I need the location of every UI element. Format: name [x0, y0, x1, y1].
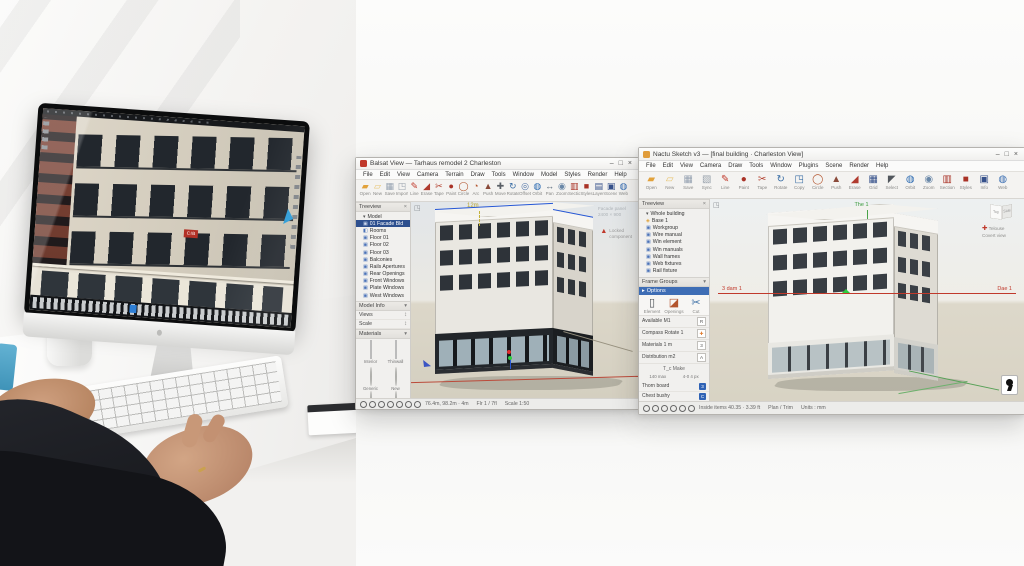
toolbar-button[interactable]: ▣ Info — [975, 174, 994, 190]
toolbar-button[interactable]: ✂ Tape — [753, 174, 772, 190]
toolbar-button[interactable]: ▦ Save — [384, 181, 396, 196]
tool-icon: ▣ — [605, 181, 617, 191]
tree-item[interactable]: ◈ Base 1 — [639, 217, 709, 224]
toolbar-button[interactable]: ◯ Circle — [457, 181, 469, 196]
status-icon[interactable] — [643, 405, 650, 412]
tree-item[interactable]: ▣ Wire manual — [639, 232, 709, 239]
component-tool-button[interactable]: ▯ Element — [642, 297, 662, 314]
status-icon[interactable] — [670, 405, 677, 412]
make-label: T_c Make — [639, 364, 709, 373]
status-icons — [643, 405, 695, 412]
tool-icon: ▱ — [371, 181, 383, 191]
menu-item[interactable]: Scene — [822, 163, 845, 169]
tree-item-icon: ▣ — [363, 264, 368, 270]
status-icon[interactable] — [396, 401, 403, 408]
tree-item-icon: ▣ — [363, 257, 368, 263]
notebook — [307, 403, 356, 436]
tree-item[interactable]: ▣ Rear Openings — [356, 271, 410, 278]
building-model[interactable] — [754, 199, 954, 395]
tool-icon: ◯ — [457, 181, 469, 191]
property-value[interactable]: 3 — [697, 341, 706, 350]
status-bar: Inside items 40.35 · 3.39 ftPlan / TrimU… — [639, 401, 1024, 414]
tree-item[interactable]: ▣ Balconies — [356, 256, 410, 263]
property-label: Distribution m2 — [642, 354, 675, 360]
menu-bar: FileEditViewCameraTerrainDrawToolsWindow… — [356, 170, 638, 180]
status-icon[interactable] — [661, 405, 668, 412]
toolbar-button[interactable]: ◍ Web — [994, 174, 1013, 190]
tree-item-label: Floor 02 — [370, 242, 389, 248]
window-control-button[interactable]: – — [996, 151, 1000, 158]
toolbar-button[interactable]: ▥ Section — [568, 181, 580, 196]
status-icon[interactable] — [360, 401, 367, 408]
tool-icon: ◢ — [846, 174, 865, 185]
toolbar: ▰ Open ▱ New ▦ Save ▧ Sync ✎ Line ● Pain… — [639, 172, 1024, 199]
toolbar-button[interactable]: ◢ Erase — [846, 174, 865, 190]
toolbar-button[interactable]: ▣ Scenes — [605, 181, 617, 196]
swatch-thumbnail — [395, 391, 397, 398]
tool-icon: ✎ — [716, 174, 735, 185]
tree-item[interactable]: ▣ Win element — [639, 239, 709, 246]
stepper-icon[interactable]: ↕ — [404, 312, 407, 318]
screen-reflection — [29, 108, 304, 328]
titlebar[interactable]: Nactu Sketch v3 — [final building · Char… — [639, 148, 1024, 161]
tool-label: Save — [384, 191, 396, 196]
tree-item-icon: ▣ — [363, 293, 368, 299]
info-row[interactable]: Scale ↕ — [356, 320, 410, 329]
property-value[interactable]: R — [697, 317, 706, 326]
tool-icon: ◳ — [790, 174, 809, 185]
toolbar-button[interactable]: ▦ Grid — [864, 174, 883, 190]
window-controls: –□× — [610, 160, 634, 167]
status-bar: 76.4m, 98.2m · 4mFlr 1 / 7flScale 1:50 — [356, 398, 638, 409]
tree-item-icon: ▾ — [363, 214, 366, 220]
menu-item[interactable]: Edit — [660, 163, 676, 169]
status-icon[interactable] — [369, 401, 376, 408]
toolbar-button[interactable]: ◯ Circle — [809, 174, 828, 190]
toolbar-button[interactable]: ▦ Save — [679, 174, 698, 190]
tool-icon: ◉ — [556, 181, 568, 191]
tree-item-label: Balconies — [370, 257, 393, 263]
toolbar-button[interactable]: ↻ Rotate — [772, 174, 791, 190]
tree-item-icon: ▣ — [363, 250, 368, 256]
tool-icon: ◍ — [531, 181, 543, 191]
toolbar-button[interactable]: ↔ Pan — [543, 181, 555, 196]
dimension-label-right: Dae 1 — [997, 286, 1012, 292]
orbit-button[interactable] — [1001, 375, 1018, 395]
material-spheres: Generic New Floor Glass — [356, 366, 410, 398]
toolbar: ▰ Open ▱ New ▦ Save ◳ Import ✎ Line ◢ Er… — [356, 180, 638, 202]
menu-item[interactable]: View — [394, 172, 413, 178]
tool-label: Zoom — [920, 185, 939, 190]
toggle-row[interactable]: Chest bushy C — [639, 392, 709, 401]
property-label: Materials 1 m — [642, 342, 672, 348]
tool-label: Zoom — [556, 191, 568, 196]
toolbar-button[interactable]: ◉ Zoom — [556, 181, 568, 196]
menu-item[interactable]: Render — [846, 163, 872, 169]
tool-label: Cut — [686, 309, 706, 314]
toolbar-button[interactable]: ▱ New — [661, 174, 680, 190]
dimension-dashed-line — [479, 211, 480, 226]
viewport-axes-icon[interactable]: ◳ — [713, 201, 720, 209]
view-cube-face[interactable]: Top — [990, 204, 1002, 220]
toolbar-button[interactable]: ■ Styles — [957, 174, 976, 190]
groups-header[interactable]: Frame Groups▾ — [639, 277, 709, 287]
view-cube[interactable]: Top Side — [988, 201, 1014, 221]
toggle-label: Chest bushy — [642, 393, 670, 399]
window-controls: –□× — [996, 151, 1020, 158]
status-text: Scale 1:50 — [505, 401, 530, 407]
tree-item-icon: ▣ — [646, 225, 651, 231]
tool-icon: ▦ — [384, 181, 396, 191]
info-row[interactable]: Views ↕ — [356, 311, 410, 320]
property-value[interactable]: A — [697, 353, 706, 362]
viewport-axes-icon[interactable]: ◳ — [414, 204, 421, 212]
tree-item-icon: ▣ — [646, 261, 651, 267]
status-icon[interactable] — [414, 401, 421, 408]
expand-icon: ▸ — [642, 288, 645, 294]
status-text: Inside items 40.35 · 3.39 ft — [699, 405, 760, 411]
tool-icon: ● — [735, 174, 754, 185]
tree-item-icon: ▣ — [363, 242, 368, 248]
status-icon[interactable] — [405, 401, 412, 408]
tree-item-label: Plate Windows — [370, 285, 404, 291]
menu-item[interactable]: Window — [767, 163, 794, 169]
toolbar-button[interactable]: ↻ Rotate — [507, 181, 519, 196]
tool-icon: ◯ — [809, 174, 828, 185]
tree-item-icon: ▾ — [646, 211, 649, 217]
app-icon — [360, 160, 367, 167]
tool-icon: ↔ — [543, 181, 555, 191]
tool-icon: ✚ — [494, 181, 506, 191]
tool-label: Orbit — [531, 191, 543, 196]
material-swatch[interactable]: Interior — [359, 341, 382, 364]
window-control-button[interactable]: × — [1014, 151, 1018, 158]
tool-label: Info — [975, 185, 994, 190]
gizmo-blue-axis — [510, 360, 511, 369]
tool-label: Tape — [433, 191, 445, 196]
menu-item[interactable]: Draw — [468, 172, 488, 178]
tool-label: Sync — [698, 185, 717, 190]
swatch-thumbnail — [395, 340, 397, 359]
toolbar-button[interactable]: ◳ Copy — [790, 174, 809, 190]
status-icon[interactable] — [679, 405, 686, 412]
menu-item[interactable]: Help — [611, 172, 629, 178]
menu-item[interactable]: Model — [538, 172, 560, 178]
tool-label: Arc — [470, 191, 482, 196]
titlebar[interactable]: Balsat View — Tarhaus remodel 2 Charlest… — [356, 158, 638, 170]
imac-screen-bezel: CIB — [24, 103, 310, 333]
tree-item-label: Wire manual — [653, 232, 682, 238]
tree-item[interactable]: ▣ Rails Apertures — [356, 263, 410, 270]
window-title: Balsat View — Tarhaus remodel 2 Charlest… — [370, 160, 607, 167]
options-bar[interactable]: ▸Options — [639, 287, 709, 295]
tool-label: Circle — [457, 191, 469, 196]
swatch-thumbnail — [370, 340, 372, 359]
tree-panel-header[interactable]: Treeview× — [356, 202, 410, 212]
toolbar-button[interactable]: ◍ Orbit — [531, 181, 543, 196]
toolbar-button[interactable]: ✎ Line — [408, 181, 420, 196]
tool-icon: ◍ — [994, 174, 1013, 185]
tool-label: Section — [938, 185, 957, 190]
tool-label: Section — [568, 191, 580, 196]
tree-item-label: Floor 03 — [370, 250, 389, 256]
viewport-3d[interactable]: ◳ — [710, 199, 1024, 401]
tree-item-label: Win manuals — [653, 247, 683, 253]
tree-item[interactable]: ▣ Rail fixture — [639, 268, 709, 275]
tool-icon: ■ — [580, 181, 592, 191]
menu-item[interactable]: Help — [873, 163, 891, 169]
sidebar: Treeview× ▾ Whole building ◈ Base 1 ▣ Wo… — [639, 199, 710, 401]
tree-item[interactable]: ▣ Win manuals — [639, 246, 709, 253]
tool-label: Paint — [735, 185, 754, 190]
toolbar-button[interactable]: ◔ Arc — [470, 181, 482, 196]
menu-item[interactable]: Window — [510, 172, 537, 178]
tree-panel-header[interactable]: Treeview× — [639, 199, 709, 209]
tool-icon: ▦ — [864, 174, 883, 185]
toolbar-button[interactable]: ▲ Push — [827, 174, 846, 190]
tool-icon: ▥ — [938, 174, 957, 185]
component-tool-button[interactable]: ◪ Openings — [664, 297, 684, 314]
info-panel-header[interactable]: Model Info▾ — [356, 301, 410, 311]
toolbar-button[interactable]: ◍ Web — [617, 181, 629, 196]
tool-label: Push — [827, 185, 846, 190]
component-thumbnails: 140 max 4-0 4 px — [639, 373, 709, 382]
imac-display: CIB — [22, 103, 310, 359]
warning-icon: ▲ — [600, 228, 607, 239]
toolbar-button[interactable]: ◍ Orbit — [901, 174, 920, 190]
tree-item-icon: ▣ — [363, 235, 368, 241]
viewport-3d[interactable]: ◳ — [411, 202, 638, 398]
window-control-button[interactable]: □ — [619, 160, 623, 167]
toggle-checkbox[interactable]: C — [699, 393, 706, 400]
tree-item-label: West Windows — [370, 293, 404, 299]
tool-icon: ▰ — [359, 181, 371, 191]
toolbar-button[interactable]: ◤ Select — [883, 174, 902, 190]
tree-item[interactable]: ▾ Model — [356, 213, 410, 220]
tool-icon: ◳ — [396, 181, 408, 191]
component-tool-button[interactable]: ✂ Cut — [686, 297, 706, 314]
tool-label: Web — [617, 191, 629, 196]
property-label: Compass Rotate 1 — [642, 330, 683, 336]
tree-item[interactable]: ▣ Floor 03 — [356, 249, 410, 256]
property-row[interactable]: Available M1 R — [639, 316, 709, 328]
collapse-icon[interactable]: ▾ — [404, 331, 407, 337]
tool-icon: ↻ — [507, 181, 519, 191]
collapse-icon[interactable]: ▾ — [404, 303, 407, 309]
material-squares: Interior Thinwall — [356, 339, 410, 366]
toolbar-button[interactable]: ▱ New — [371, 181, 383, 196]
menu-item[interactable]: Render — [585, 172, 611, 178]
tool-label: Open — [642, 185, 661, 190]
tree-item[interactable]: ◧ Rooms — [356, 227, 410, 234]
property-row[interactable]: Distribution m2 A — [639, 352, 709, 364]
component-thumbnail[interactable]: 4-0 4 px — [683, 374, 699, 380]
material-swatch[interactable]: New — [384, 368, 407, 391]
status-text: Flr 1 / 7fl — [477, 401, 497, 407]
toolbar-button[interactable]: ✎ Line — [716, 174, 735, 190]
component-label: 4-0 4 px — [683, 374, 699, 380]
tool-label: Web — [994, 185, 1013, 190]
menu-bar: FileEditViewCameraDrawToolsWindowPlugins… — [639, 161, 1024, 172]
tree-item-icon: ◧ — [363, 228, 368, 234]
tool-icon: ▤ — [593, 181, 605, 191]
material-swatch[interactable]: Generic — [359, 368, 382, 391]
status-icon[interactable] — [387, 401, 394, 408]
toolbar-button[interactable]: ✚ Move — [494, 181, 506, 196]
menu-item[interactable]: File — [360, 172, 376, 178]
tree-item[interactable]: ▣ Web fixtures — [639, 260, 709, 267]
tree-item-label: Base 1 — [652, 218, 668, 224]
toolbar-button[interactable]: ▰ Open — [642, 174, 661, 190]
menu-item[interactable]: View — [677, 163, 696, 169]
tool-label: Styles — [957, 185, 976, 190]
tool-icon: ■ — [957, 174, 976, 185]
app-icon — [643, 151, 650, 158]
tree-item-icon: ▣ — [646, 268, 651, 274]
home-view-widget[interactable]: ✚ TelouseCovert view — [982, 225, 1016, 239]
menu-item[interactable]: File — [643, 163, 659, 169]
building-model[interactable] — [423, 204, 601, 388]
tool-icon: ◢ — [420, 181, 432, 191]
status-text: Plan / Trim — [768, 405, 793, 411]
tree-item[interactable]: ▣ West Windows — [356, 292, 410, 299]
tool-icon: ▯ — [642, 297, 662, 309]
tree-item[interactable]: ▣ Floor 02 — [356, 242, 410, 249]
toolbar-button[interactable]: ◎ Offset — [519, 181, 531, 196]
toggle-checkbox[interactable]: 3 — [699, 383, 706, 390]
green-snap-marker — [842, 285, 850, 293]
tree-item-icon: ▣ — [363, 271, 368, 277]
green-top-label: The 1 — [854, 202, 868, 208]
toolbar-button[interactable]: ● Paint — [445, 181, 457, 196]
tool-label: Grid — [864, 185, 883, 190]
tool-label: Layers — [593, 191, 605, 196]
toolbar-button[interactable]: ▥ Section — [938, 174, 957, 190]
green-guide-line — [867, 210, 868, 219]
tool-label: Circle — [809, 185, 828, 190]
toolbar-button[interactable]: ▲ Push — [482, 181, 494, 196]
window-control-button[interactable]: × — [628, 160, 632, 167]
materials-header[interactable]: Materials▾ — [356, 329, 410, 339]
viewport-tooltip: Facade panel2400 × 900 — [598, 206, 632, 217]
property-value[interactable]: ✚ — [697, 329, 706, 338]
tool-label: Openings — [664, 309, 684, 314]
tree-item-icon: ▣ — [646, 247, 651, 253]
cad-window-left: Balsat View — Tarhaus remodel 2 Charlest… — [355, 157, 639, 410]
material-swatch[interactable]: Thinwall — [384, 341, 407, 364]
tool-icon: ✂ — [686, 297, 706, 309]
status-icon[interactable] — [688, 405, 695, 412]
tree-item-icon: ▣ — [363, 285, 368, 291]
menu-item[interactable]: Plugins — [796, 163, 822, 169]
tool-label: Copy — [790, 185, 809, 190]
toggle-row[interactable]: Thorn board 3 — [639, 382, 709, 392]
tool-label: Orbit — [901, 185, 920, 190]
view-cube-face[interactable]: Side — [1002, 204, 1012, 219]
tool-icon: ▲ — [827, 174, 846, 185]
status-icon[interactable] — [378, 401, 385, 408]
menu-item[interactable]: Terrain — [442, 172, 466, 178]
storefront — [435, 328, 553, 370]
toolbar-button[interactable]: ◉ Zoom — [920, 174, 939, 190]
tree-item-label: Rooms — [370, 228, 386, 234]
tree-item-label: Rail fixture — [653, 268, 678, 274]
tree-item-icon: ▣ — [363, 221, 368, 227]
window-control-button[interactable]: □ — [1005, 151, 1009, 158]
window-title: Nactu Sketch v3 — [final building · Char… — [653, 151, 993, 158]
swatch-thumbnail — [370, 391, 372, 398]
tool-label: Erase — [420, 191, 432, 196]
status-icon[interactable] — [652, 405, 659, 412]
menu-item[interactable]: Edit — [377, 172, 393, 178]
photo-app-screen: CIB — [29, 108, 304, 328]
property-row[interactable]: Compass Rotate 1 ✚ — [639, 328, 709, 340]
menu-item[interactable]: Tools — [489, 172, 509, 178]
tool-label: Erase — [846, 185, 865, 190]
building-front-face — [768, 204, 894, 379]
tree-item-label: Workgroup — [653, 225, 678, 231]
tree-item[interactable]: ▣ Workgroup — [639, 224, 709, 231]
tool-label: Move — [494, 191, 506, 196]
outliner-tree: ▾ Whole building ◈ Base 1 ▣ Workgroup ▣ … — [639, 209, 709, 277]
toolbar-button[interactable]: ✂ Tape — [433, 181, 445, 196]
collapse-icon[interactable]: × — [703, 201, 706, 207]
tree-item[interactable]: ▣ 01 Facade Bld — [356, 220, 410, 227]
tree-item[interactable]: ▣ Floor 01 — [356, 235, 410, 242]
tree-item[interactable]: ▣ Plate Windows — [356, 285, 410, 292]
toolbar-button[interactable]: ▧ Sync — [698, 174, 717, 190]
toolbar-button[interactable]: ◳ Import — [396, 181, 408, 196]
toolbar-button[interactable]: ● Paint — [735, 174, 754, 190]
tree-item-label: Floor 01 — [370, 235, 389, 241]
tool-label: Select — [883, 185, 902, 190]
window-control-button[interactable]: – — [610, 160, 614, 167]
tree-item[interactable]: ▣ Wall frames — [639, 253, 709, 260]
tool-label: Paint — [445, 191, 457, 196]
menu-item[interactable]: Tools — [746, 163, 766, 169]
tool-icon: ✂ — [753, 174, 772, 185]
menu-item[interactable]: Styles — [561, 172, 583, 178]
tree-item-icon: ▣ — [646, 254, 651, 260]
tool-icon: ▥ — [568, 181, 580, 191]
tool-icon: ▣ — [975, 174, 994, 185]
tree-item-icon: ◈ — [646, 218, 650, 224]
menu-item[interactable]: Camera — [414, 172, 441, 178]
toolbar-button[interactable]: ◢ Erase — [420, 181, 432, 196]
collapse-icon[interactable]: × — [404, 204, 407, 210]
tree-item[interactable]: ▣ Front Windows — [356, 278, 410, 285]
toolbar-button[interactable]: ▰ Open — [359, 181, 371, 196]
toolbar-button[interactable]: ■ Styles — [580, 181, 592, 196]
stepper-icon[interactable]: ↕ — [404, 321, 407, 327]
toolbar-button[interactable]: ▤ Layers — [593, 181, 605, 196]
tree-item-label: Whole building — [651, 211, 685, 217]
tool-icon: ● — [445, 181, 457, 191]
menu-item[interactable]: Camera — [697, 163, 724, 169]
tool-icon: ◉ — [920, 174, 939, 185]
component-label: 140 max — [649, 374, 666, 380]
tool-icon: ◔ — [470, 181, 482, 191]
tool-label: Styles — [580, 191, 592, 196]
menu-item[interactable]: Draw — [725, 163, 745, 169]
building-front-face — [435, 204, 553, 374]
component-thumbnail[interactable]: 140 max — [649, 374, 666, 380]
collapse-icon[interactable]: ▾ — [703, 279, 706, 285]
tree-item[interactable]: ▾ Whole building — [639, 210, 709, 217]
gizmo-red-handle[interactable] — [507, 350, 511, 354]
property-row[interactable]: Materials 1 m 3 — [639, 340, 709, 352]
swatch-label: Thinwall — [384, 359, 407, 364]
